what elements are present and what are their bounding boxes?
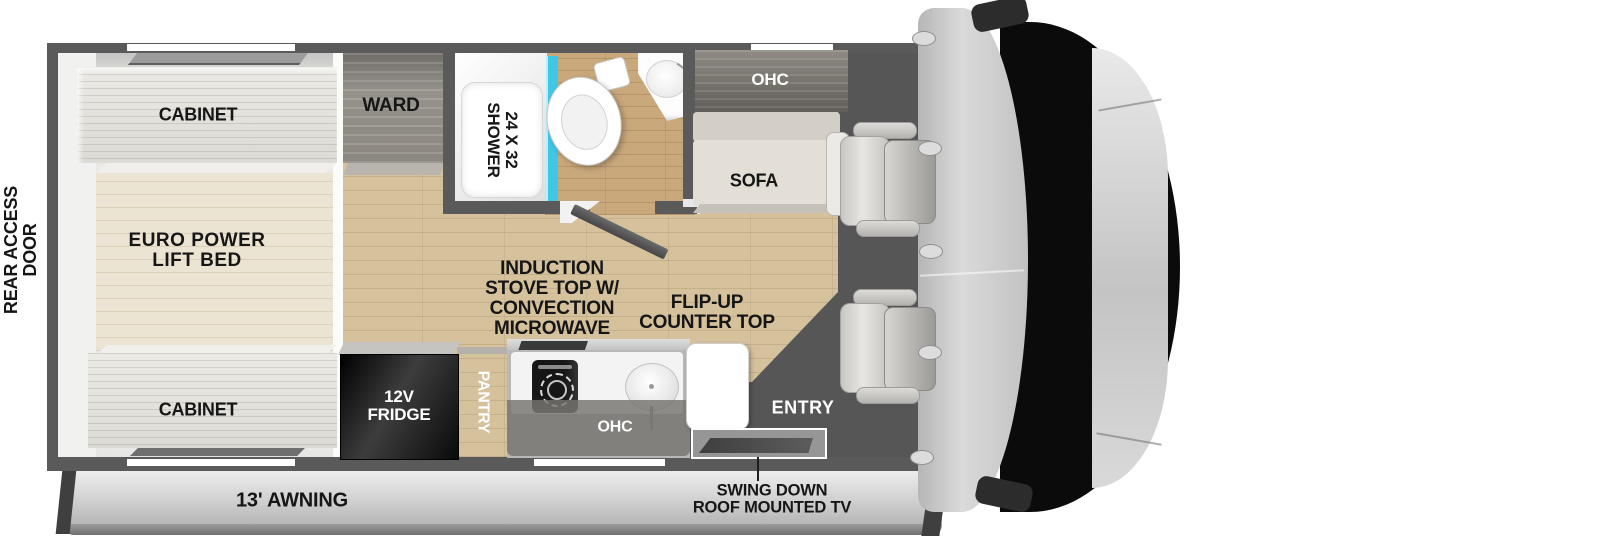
sofa-back	[693, 112, 840, 142]
window-bottom-mid	[534, 459, 665, 466]
body-joint-knob-5	[910, 450, 934, 465]
body-joint-knob-3	[919, 244, 943, 259]
window-top-rear	[127, 44, 295, 51]
flip-up-counter	[686, 343, 749, 430]
label-ward: WARD	[362, 96, 419, 116]
label-pantry: PANTRY	[474, 371, 491, 434]
label-sofa: SOFA	[730, 171, 778, 190]
label-induction-stove: INDUCTION STOVE TOP W/ CONVECTION MICROW…	[485, 259, 619, 340]
bottom-vent-rear	[130, 447, 306, 456]
tv-leader-line	[757, 457, 759, 481]
passenger-seat-cushion	[840, 136, 890, 226]
body-joint-knob-1	[912, 31, 936, 46]
label-rear-access-door: REAR ACCESS DOOR	[2, 186, 40, 314]
passenger-seat	[840, 120, 936, 238]
label-cabinet-top: CABINET	[159, 105, 238, 124]
tv-screen	[699, 438, 813, 453]
label-euro-power-lift-bed: EURO POWER LIFT BED	[129, 231, 266, 271]
shower-left-wall	[443, 53, 455, 203]
wardrobe-front-edge	[343, 163, 445, 175]
swing-down-tv-box	[691, 428, 827, 459]
driver-seat-armrest-bottom	[856, 387, 920, 404]
sofa-front-edge	[693, 204, 834, 213]
rv-floorplan: REAR ACCESS DOOR CABINET EURO POWER LIFT…	[0, 0, 1600, 555]
label-ohc-kitchen: OHC	[598, 420, 633, 437]
rear-cabinet-top-edge	[95, 163, 337, 173]
kitchen-sink-drain	[649, 384, 654, 389]
window-bottom-rear	[127, 459, 295, 466]
label-flip-up-counter: FLIP-UP COUNTER TOP	[639, 293, 775, 333]
cooktop-bar	[538, 365, 572, 369]
roof-vent-rear	[128, 53, 308, 65]
label-cabinet-bottom: CABINET	[159, 400, 238, 419]
cab-front-body	[1092, 48, 1168, 488]
driver-seat-cushion	[840, 303, 890, 393]
label-fridge: 12V FRIDGE	[367, 388, 430, 424]
label-entry: ENTRY	[772, 398, 835, 417]
label-swing-down-tv: SWING DOWN ROOF MOUNTED TV	[693, 483, 851, 518]
label-shower: 24 X 32 SHOWER	[484, 102, 520, 177]
rear-wall	[47, 43, 58, 471]
body-joint-knob-2	[918, 141, 942, 156]
passenger-seat-armrest-bottom	[856, 220, 920, 237]
label-ohc-sofa: OHC	[751, 71, 788, 89]
body-joint-knob-4	[918, 345, 942, 360]
awning-bottom-edge	[64, 524, 942, 535]
cooktop-ring-inner	[547, 380, 567, 400]
label-awning: 13' AWNING	[236, 490, 348, 511]
